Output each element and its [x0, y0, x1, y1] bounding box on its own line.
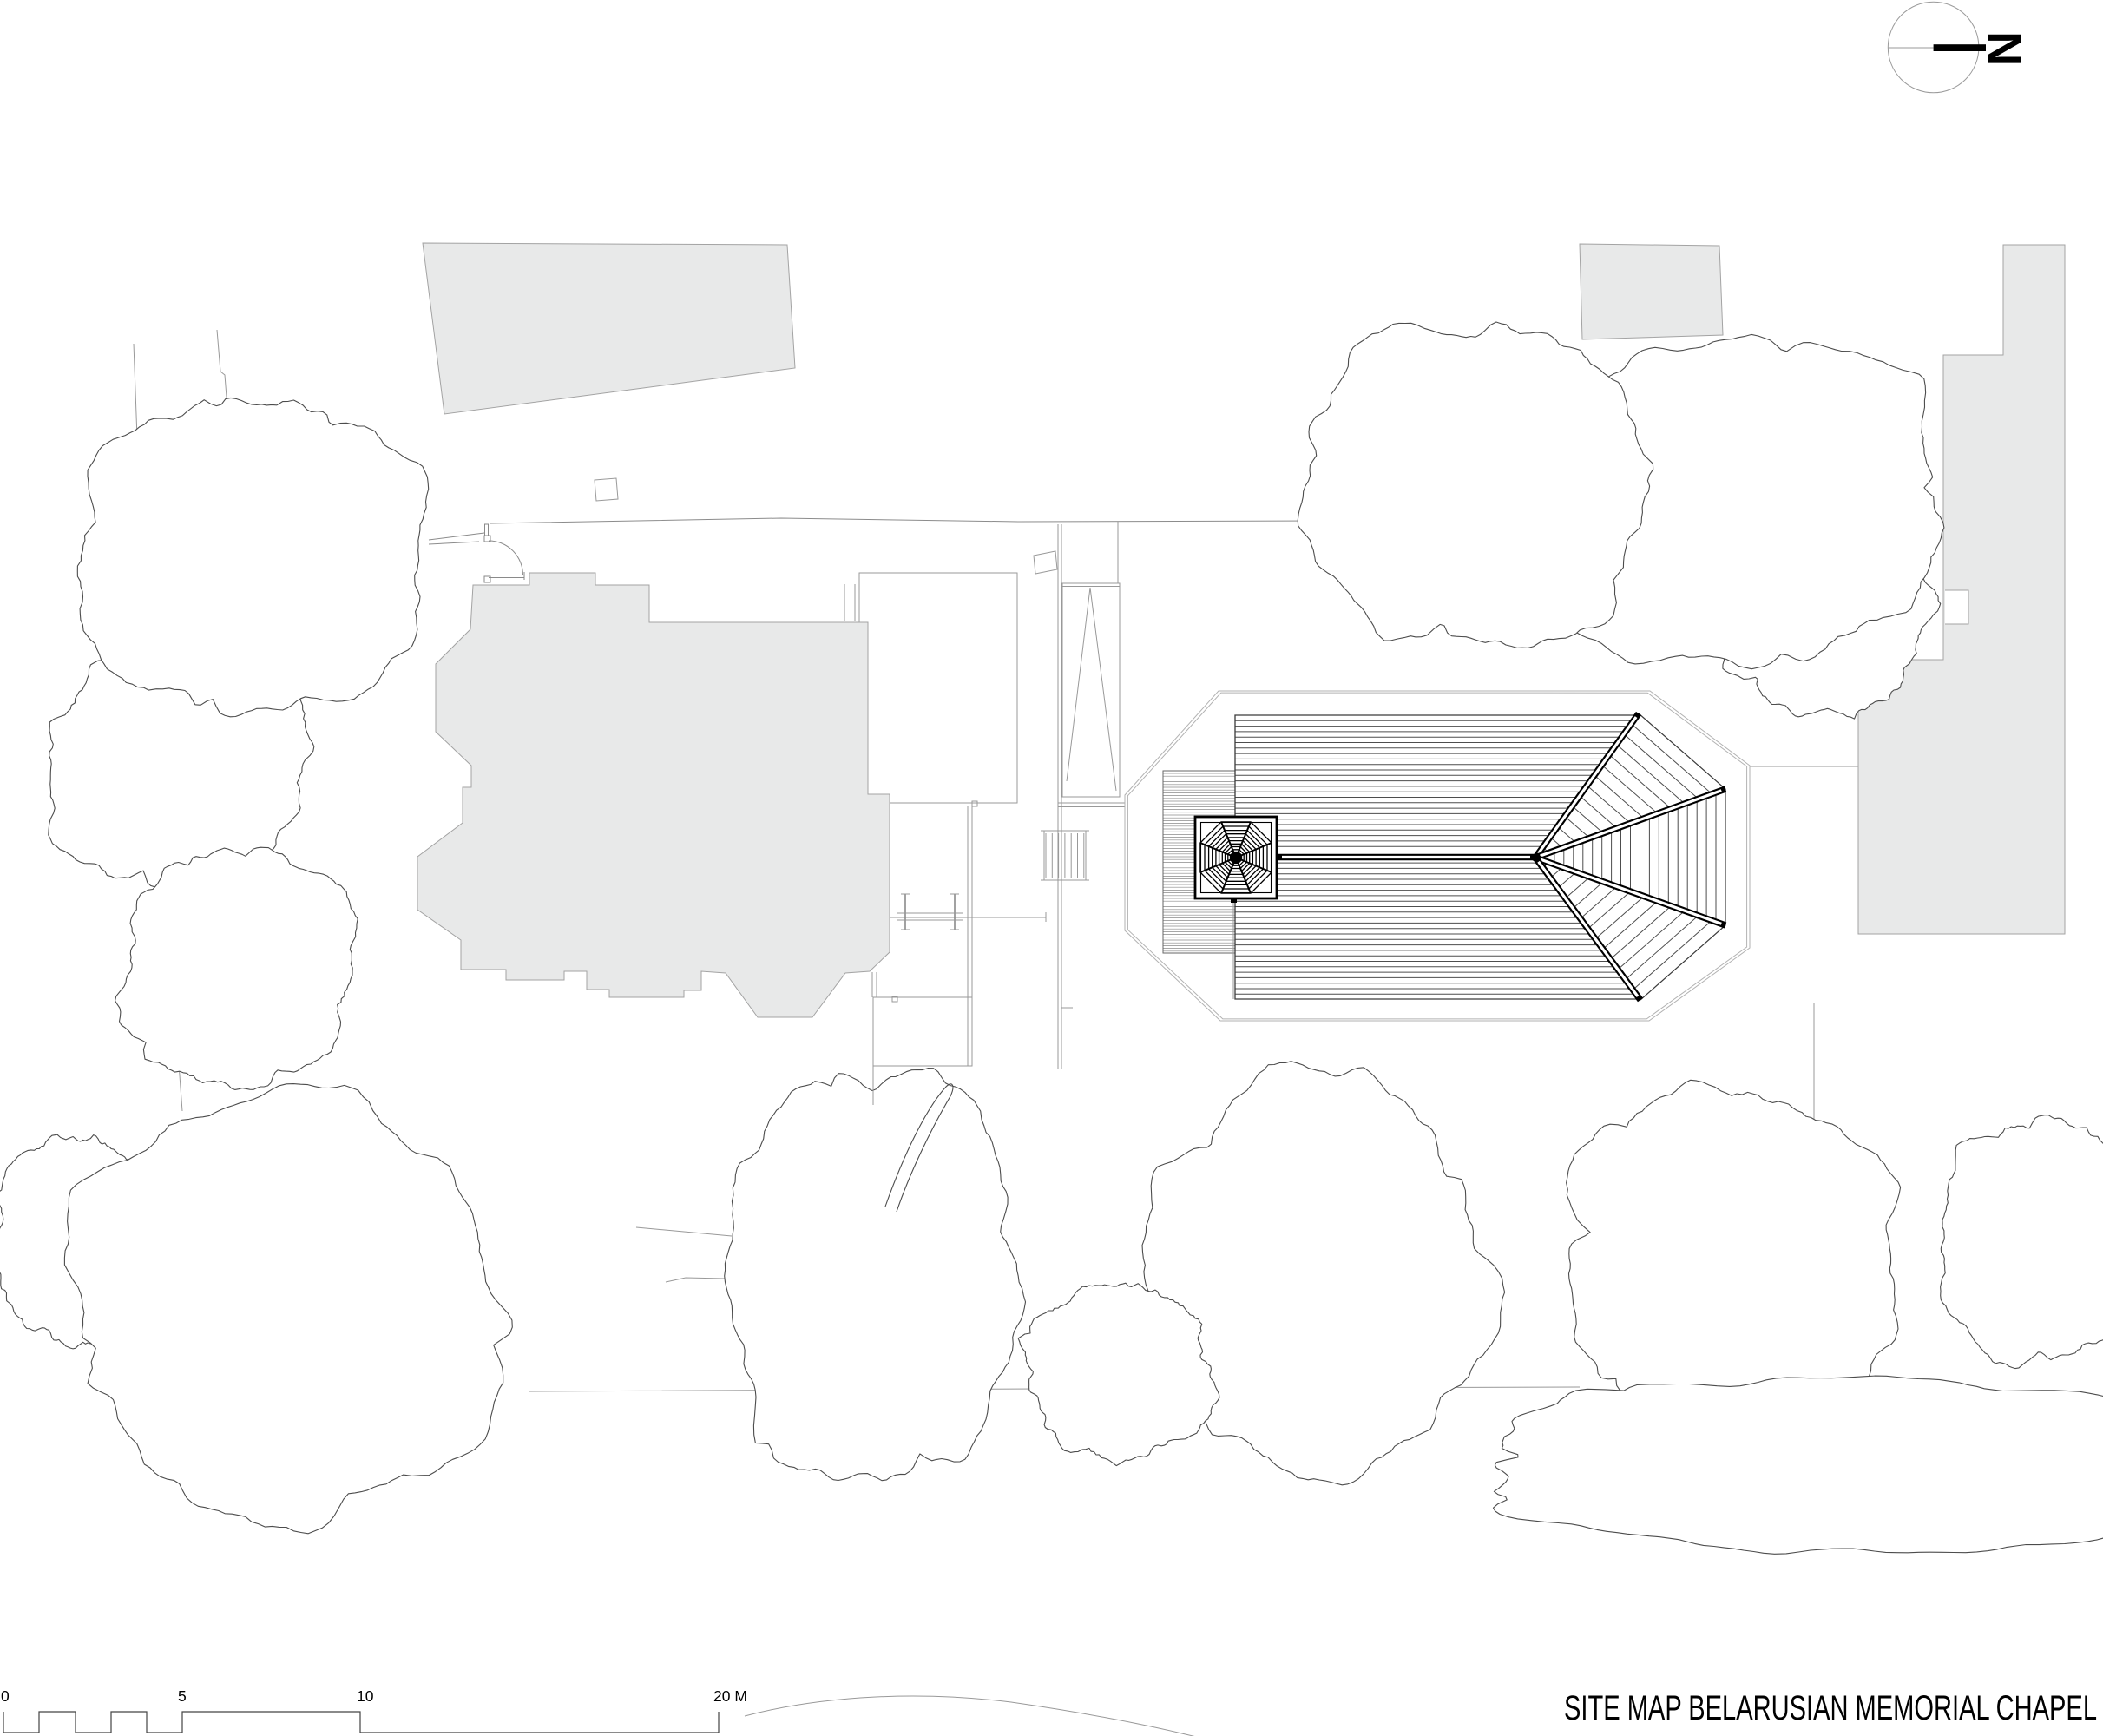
svg-text:0: 0	[1, 1687, 10, 1705]
svg-text:20 M: 20 M	[713, 1687, 747, 1705]
svg-text:10: 10	[357, 1687, 374, 1705]
svg-text:5: 5	[178, 1687, 187, 1705]
svg-text:SITE MAP BELARUSIAN MEMORIAL C: SITE MAP BELARUSIAN MEMORIAL CHAPEL	[1564, 1689, 2097, 1727]
svg-text:N: N	[1977, 31, 2032, 66]
